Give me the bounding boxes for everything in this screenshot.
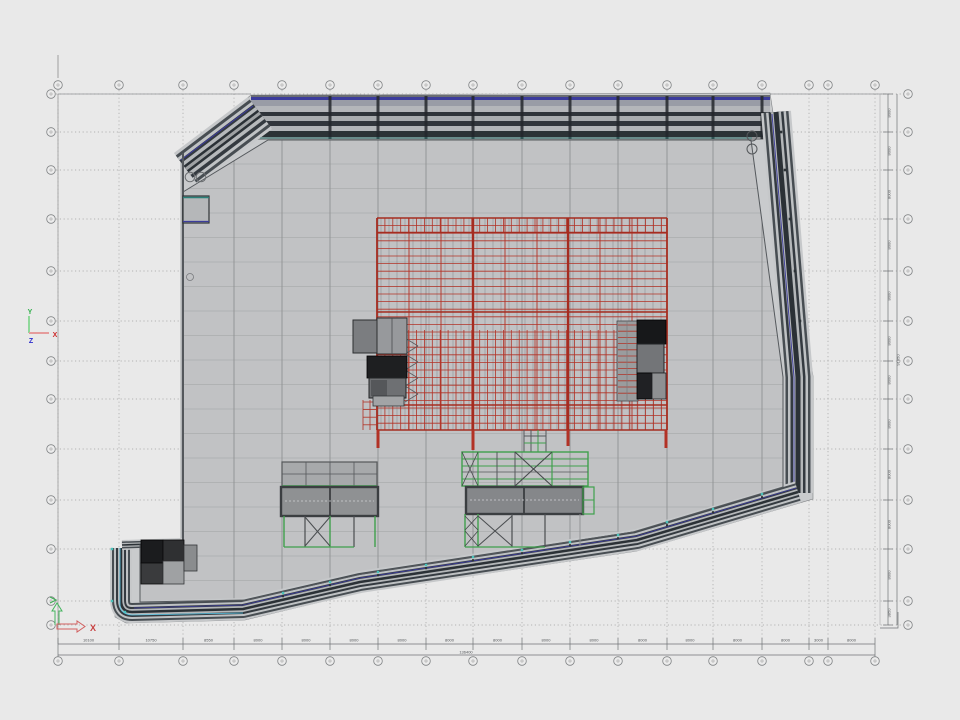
grid-bubble-bottom	[374, 657, 383, 666]
grid-bubble-left	[47, 621, 56, 630]
ucs-layout-x-label: X	[90, 623, 96, 633]
bottom-dim-text: 8000	[638, 638, 648, 643]
grid-bubble-top	[871, 81, 880, 90]
bottom-dim-text: 8000	[445, 638, 455, 643]
dark-marker-dot	[569, 544, 571, 546]
right-dim-text: 8000	[887, 519, 892, 529]
ucs-icon-layout: X	[50, 597, 96, 633]
grid-bubble-right	[904, 128, 913, 137]
grid-bubble-bottom	[54, 657, 63, 666]
dark-marker-dot	[761, 496, 763, 498]
ucs-z-label: Z	[29, 338, 34, 345]
cyan-marker-dot	[472, 556, 474, 558]
cyan-marker-dot	[569, 541, 571, 543]
grid-bubble-left	[47, 90, 56, 99]
dark-marker-dot	[797, 398, 800, 401]
right-dim-text: 8000	[887, 189, 892, 199]
grid-bubble-top	[824, 81, 833, 90]
equipment-box-dark	[163, 540, 184, 561]
grid-bubble-bottom	[824, 657, 833, 666]
grid-bubble-top	[566, 81, 575, 90]
cad-canvas[interactable]: 1010010750855080008000800080008000800080…	[0, 0, 960, 720]
dark-marker-dot	[521, 552, 523, 554]
dark-marker-dot	[472, 559, 474, 561]
grid-bubble-left	[47, 166, 56, 175]
cyan-marker-dot	[111, 548, 113, 550]
ladder-rack	[617, 321, 638, 401]
grid-bubble-top	[179, 81, 188, 90]
grid-bubble-top	[663, 81, 672, 90]
grid-bubble-top	[326, 81, 335, 90]
grid-bubble-bottom	[871, 657, 880, 666]
grid-bubble-right	[904, 545, 913, 554]
grid-bubble-top	[374, 81, 383, 90]
grid-support-post	[567, 430, 570, 446]
cyan-marker-dot	[329, 581, 331, 583]
grid-bubble-left	[47, 317, 56, 326]
equipment-box-dark	[141, 563, 163, 584]
band-post	[521, 96, 524, 139]
dark-marker-dot	[794, 270, 797, 273]
grid-bubble-right	[904, 166, 913, 175]
ucs-y-label: Y	[28, 309, 33, 316]
ucs-x-label: X	[53, 332, 58, 339]
equipment-box-dark	[637, 373, 652, 399]
bottom-dim-text: 8000	[302, 638, 312, 643]
right-total-dimension: 91850	[896, 354, 901, 366]
grid-support-post	[665, 430, 668, 448]
grid-bubble-left	[47, 545, 56, 554]
band-post	[569, 96, 572, 139]
grid-bubble-bottom	[518, 657, 527, 666]
grid-bubble-top	[805, 81, 814, 90]
bottom-dim-text: 10100	[83, 638, 95, 643]
bottom-dim-text: 8000	[350, 638, 360, 643]
grid-bubble-bottom	[469, 657, 478, 666]
bottom-dim-text: 8000	[590, 638, 600, 643]
bottom-dim-text: 8000	[493, 638, 503, 643]
grid-bubble-bottom	[805, 657, 814, 666]
bottom-dim-text: 8000	[254, 638, 264, 643]
grid-bubble-bottom	[566, 657, 575, 666]
dark-marker-dot	[377, 574, 379, 576]
right-dim-text: 8000	[887, 108, 892, 118]
bottom-dim-text: 3000	[814, 638, 824, 643]
cyan-marker-dot	[617, 534, 619, 536]
grid-bubble-left	[47, 267, 56, 276]
equipment-box-dark	[141, 540, 163, 563]
grid-support-post	[377, 430, 380, 448]
equipment-cluster-right	[617, 320, 666, 401]
equipment-box-light	[163, 561, 184, 584]
grid-bubble-right	[904, 357, 913, 366]
grid-bubble-top	[709, 81, 718, 90]
cyan-marker-dot	[282, 592, 284, 594]
grid-bubble-bottom	[278, 657, 287, 666]
grid-bubble-bottom	[230, 657, 239, 666]
grid-bubble-left	[47, 357, 56, 366]
band-post	[377, 96, 380, 139]
grid-bubble-top	[278, 81, 287, 90]
bottom-dim-text: 8000	[847, 638, 857, 643]
grid-bubble-left	[47, 128, 56, 137]
equipment-box-inner	[371, 380, 387, 396]
cyan-marker-dot	[377, 571, 379, 573]
bottom-total-dimension: 136400	[459, 650, 473, 655]
grid-bubble-bottom	[758, 657, 767, 666]
grid-bubble-right	[904, 621, 913, 630]
ucs-right-arrow-icon	[57, 621, 85, 632]
grid-bubble-top	[230, 81, 239, 90]
grid-bubble-left	[47, 496, 56, 505]
dark-marker-dot	[666, 524, 668, 526]
bottom-dim-text: 8000	[781, 638, 791, 643]
cyan-marker-dot	[111, 600, 113, 602]
grid-bubble-bottom	[422, 657, 431, 666]
cyan-marker-dot	[712, 508, 714, 510]
right-dim-text: 8000	[887, 419, 892, 429]
grid-bubble-top	[614, 81, 623, 90]
right-dim-text: 8000	[887, 240, 892, 250]
bottom-dim-text: 8000	[398, 638, 408, 643]
ucs-icon-model: Y X Z	[28, 309, 58, 345]
grid-bubble-bottom	[326, 657, 335, 666]
grid-bubble-bottom	[709, 657, 718, 666]
grid-bubble-right	[904, 317, 913, 326]
seating-band-top	[251, 95, 770, 140]
grid-bubble-right	[904, 445, 913, 454]
grid-bubble-bottom	[614, 657, 623, 666]
equipment-box	[353, 320, 379, 353]
right-dim-text: 8000	[887, 375, 892, 385]
band-post	[425, 96, 428, 139]
band-post	[666, 96, 669, 139]
dark-marker-dot	[799, 320, 802, 323]
cyan-marker-dot	[666, 521, 668, 523]
equipment-box-dark	[367, 356, 407, 378]
grid-bubble-right	[904, 90, 913, 99]
dark-marker-dot	[712, 511, 714, 513]
equipment-box	[637, 344, 664, 373]
grid-bubble-top	[758, 81, 767, 90]
equipment-box-light	[373, 396, 404, 406]
grid-bubble-right	[904, 215, 913, 224]
dark-marker-dot	[425, 567, 427, 569]
grid-bubble-right	[904, 597, 913, 606]
dark-marker-dot	[780, 131, 783, 134]
band-post	[617, 96, 620, 139]
dark-marker-dot	[282, 595, 284, 597]
bottom-dim-text: 10750	[145, 638, 157, 643]
grid-bubble-left	[47, 395, 56, 404]
dark-marker-dot	[329, 584, 331, 586]
grid-support-post	[472, 430, 475, 450]
bottom-dim-text: 8000	[686, 638, 696, 643]
dark-marker-dot	[784, 169, 787, 172]
bottom-dim-text: 8550	[204, 638, 214, 643]
bottom-dim-text: 8000	[542, 638, 552, 643]
arena-building	[111, 93, 813, 623]
dark-marker-dot	[789, 218, 792, 221]
grid-bubble-left	[47, 445, 56, 454]
grid-bubble-bottom	[179, 657, 188, 666]
equipment-box-dark	[637, 320, 666, 344]
cyan-marker-dot	[761, 493, 763, 495]
grid-bubble-right	[904, 395, 913, 404]
band-post	[329, 96, 332, 139]
cyan-marker-dot	[425, 564, 427, 566]
side-room-outline	[183, 196, 209, 223]
right-dim-text: 8000	[887, 146, 892, 156]
bottom-dim-text: 8000	[733, 638, 743, 643]
grid-bubble-bottom	[115, 657, 124, 666]
right-dim-text: 8000	[887, 469, 892, 479]
cyan-marker-dot	[521, 549, 523, 551]
right-dim-text: 3850	[887, 608, 892, 618]
dark-marker-dot	[797, 448, 800, 451]
grid-bubble-top	[422, 81, 431, 90]
band-post	[472, 96, 475, 139]
grid-bubble-left	[47, 215, 56, 224]
grid-bubble-top	[54, 81, 63, 90]
equipment-box	[652, 373, 666, 399]
grid-bubble-right	[904, 496, 913, 505]
grid-bubble-top	[115, 81, 124, 90]
cad-viewport[interactable]: 1010010750855080008000800080008000800080…	[0, 0, 960, 720]
side-room	[183, 196, 209, 223]
equipment-box	[184, 545, 197, 571]
grid-bubble-bottom	[663, 657, 672, 666]
right-dim-text: 8000	[887, 336, 892, 346]
grid-bubble-right	[904, 267, 913, 276]
dark-marker-dot	[617, 537, 619, 539]
grid-bubble-top	[469, 81, 478, 90]
right-dim-text: 8000	[887, 291, 892, 301]
grid-bubble-top	[518, 81, 527, 90]
right-dim-text: 8000	[887, 570, 892, 580]
band-post	[712, 96, 715, 139]
